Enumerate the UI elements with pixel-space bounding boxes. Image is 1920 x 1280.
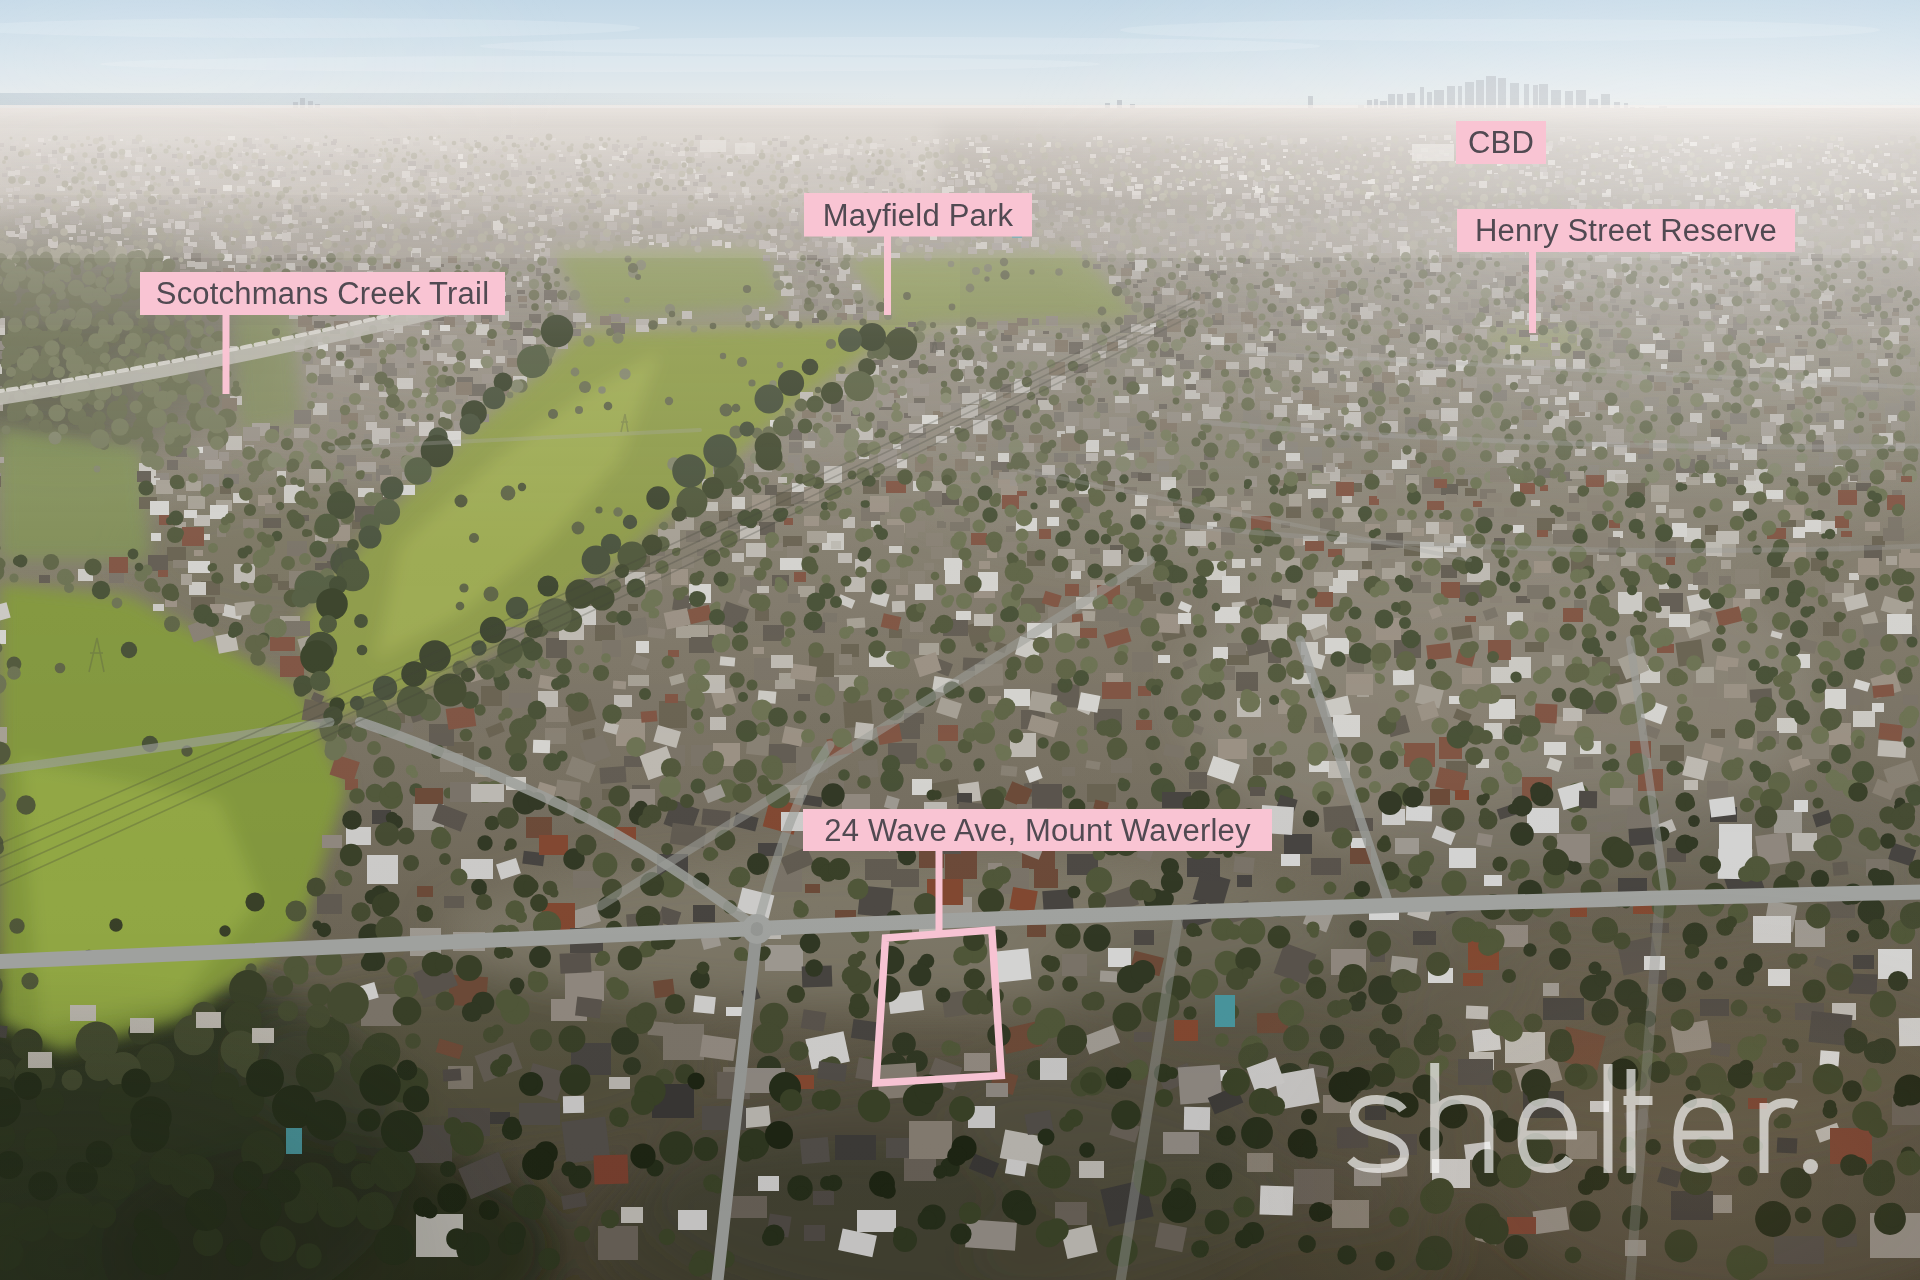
svg-text:Henry Street Reserve: Henry Street Reserve [1475,213,1777,248]
svg-text:24 Wave Ave, Mount Waverley: 24 Wave Ave, Mount Waverley [824,813,1251,848]
svg-text:CBD: CBD [1468,125,1534,160]
svg-text:Mayfield Park: Mayfield Park [823,198,1014,233]
svg-text:Scotchmans Creek Trail: Scotchmans Creek Trail [156,276,489,311]
